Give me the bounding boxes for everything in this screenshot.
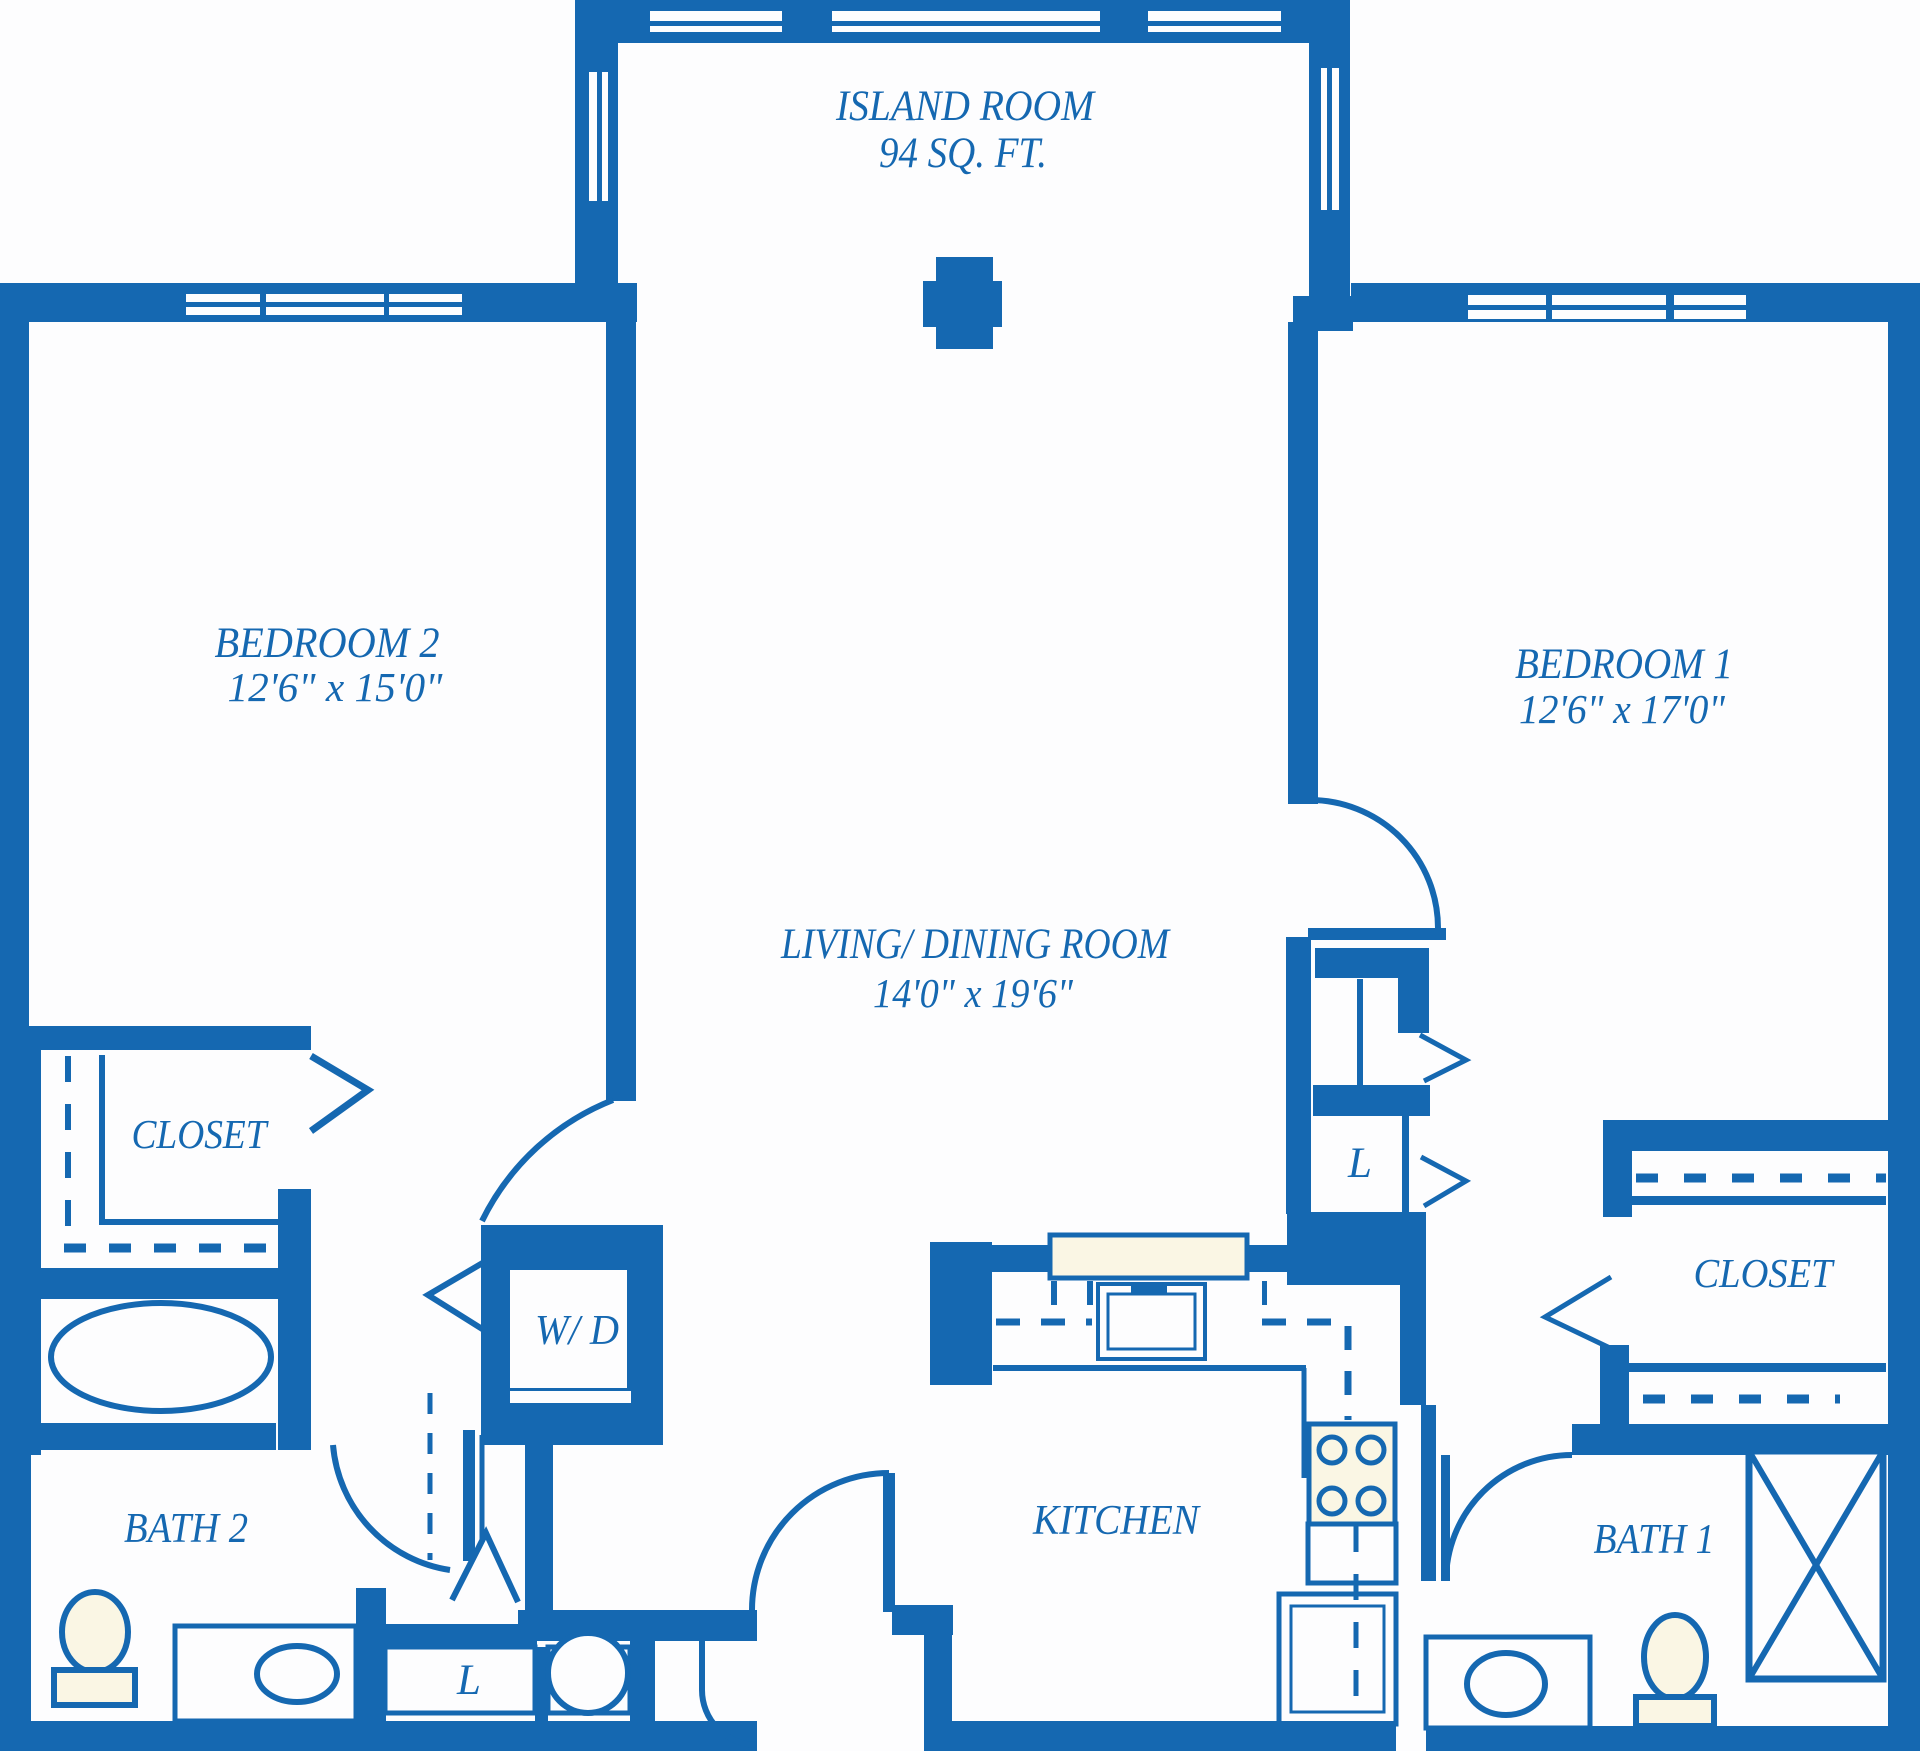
svg-text:12'6" x 15'0": 12'6" x 15'0" (228, 664, 444, 710)
svg-text:BATH 2: BATH 2 (124, 1506, 248, 1552)
svg-text:ISLAND ROOM: ISLAND ROOM (835, 83, 1096, 130)
svg-text:L: L (1347, 1140, 1372, 1187)
svg-text:KITCHEN: KITCHEN (1032, 1498, 1201, 1544)
svg-text:BEDROOM 2: BEDROOM 2 (215, 620, 440, 667)
svg-text:W/ D: W/ D (535, 1308, 619, 1354)
svg-text:CLOSET: CLOSET (1694, 1250, 1836, 1296)
svg-text:CLOSET: CLOSET (132, 1111, 270, 1157)
svg-text:BEDROOM 1: BEDROOM 1 (1515, 641, 1733, 688)
svg-text:LIVING/ DINING ROOM: LIVING/ DINING ROOM (780, 921, 1171, 968)
svg-text:L: L (456, 1657, 481, 1704)
svg-text:12'6" x 17'0": 12'6" x 17'0" (1519, 686, 1726, 732)
svg-text:BATH 1: BATH 1 (1594, 1517, 1715, 1563)
svg-text:14'0" x 19'6": 14'0" x 19'6" (873, 970, 1074, 1016)
svg-text:94 SQ. FT.: 94 SQ. FT. (879, 130, 1047, 177)
